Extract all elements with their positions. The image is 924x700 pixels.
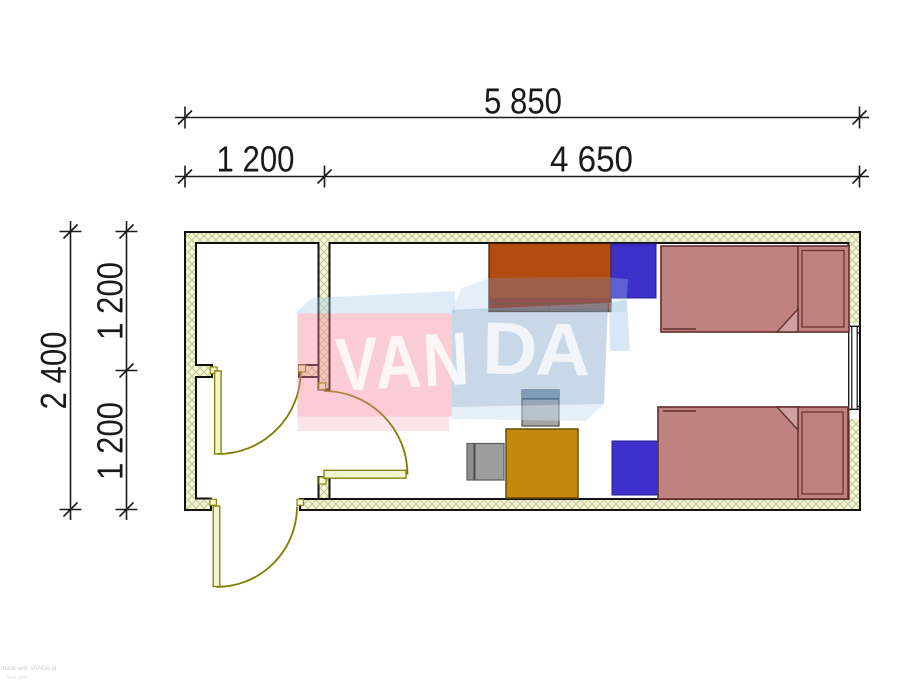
svg-text:VAN: VAN — [333, 316, 472, 407]
svg-text:DA: DA — [482, 307, 590, 392]
svg-text:2 400: 2 400 — [33, 332, 74, 410]
svg-text:1 200: 1 200 — [217, 139, 295, 180]
svg-text:1 200: 1 200 — [90, 262, 131, 340]
svg-text:floor plan: floor plan — [7, 675, 28, 681]
svg-text:1 200: 1 200 — [90, 402, 131, 480]
svg-text:5 850: 5 850 — [484, 81, 562, 122]
svg-text:made with VANDA pl: made with VANDA pl — [1, 666, 56, 672]
svg-text:4 650: 4 650 — [550, 139, 633, 180]
